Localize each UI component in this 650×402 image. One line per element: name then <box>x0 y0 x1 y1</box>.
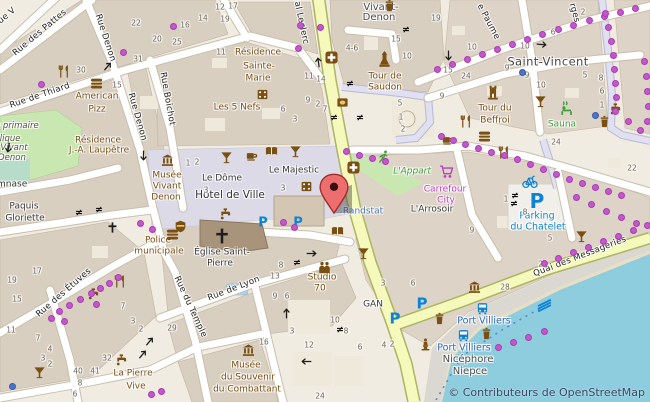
shop-dot <box>612 80 619 87</box>
film-icon <box>256 88 269 101</box>
book-icon <box>331 225 344 238</box>
shop-dot <box>297 22 304 29</box>
house-number-label: 8 <box>599 74 604 82</box>
shop-dot <box>613 94 620 101</box>
poi-label: Le Majestic <box>269 167 319 176</box>
shop-dot <box>618 214 625 221</box>
shop-dot <box>137 220 144 227</box>
shop-dot <box>633 220 640 227</box>
house-number-label: 41 <box>90 367 100 375</box>
poi-label: Marie <box>245 75 270 84</box>
shop-dot <box>149 226 156 233</box>
shop-dot <box>570 22 577 29</box>
poi-label: Tour du <box>478 105 511 114</box>
shop-dot <box>570 249 577 256</box>
oneway-arrow-icon <box>138 150 149 161</box>
shop-dot <box>566 176 573 183</box>
poi-label: Studio <box>308 274 337 283</box>
shop-dot <box>632 5 639 12</box>
cross-icon <box>214 228 230 244</box>
poi-label: Pizz <box>88 106 105 115</box>
shop-dot <box>291 224 298 231</box>
shop-dot <box>514 156 521 163</box>
shop-dot <box>9 383 16 390</box>
shop-dot <box>610 52 617 59</box>
shop-dot <box>527 161 534 168</box>
house-number-label: 1 <box>504 195 509 203</box>
museum-icon <box>242 344 255 357</box>
trash-icon <box>383 0 396 12</box>
shop-dot <box>573 194 580 201</box>
oneway-arrow-icon <box>281 308 292 319</box>
bank-icon <box>336 96 349 109</box>
poi-label: Pierre <box>207 260 233 269</box>
shop-dot <box>170 23 177 30</box>
oneway-arrow-icon <box>306 248 317 259</box>
shop-dot <box>608 38 615 45</box>
shop-dot <box>120 49 127 56</box>
house-number-label: 6 <box>600 87 605 95</box>
poi-label: Vive <box>126 383 145 392</box>
cocktail-icon <box>33 366 46 379</box>
shop-dot <box>602 10 609 17</box>
house-number-label: 3 <box>204 186 209 194</box>
house-number-label: 5 <box>398 99 403 107</box>
house-number-label: 6 <box>73 390 78 398</box>
house-number-label: 4-6 <box>346 44 358 52</box>
poi-label: du Souvenir <box>221 374 275 383</box>
bus-icon <box>457 329 470 342</box>
poi-label: J.-A. Laupêtre <box>69 147 129 156</box>
shop-dot <box>605 24 612 31</box>
poi-label: Denon <box>151 194 180 203</box>
oneway-arrow-icon <box>535 38 547 50</box>
house-number-label: 24 <box>315 392 325 400</box>
house-number-label: 22 <box>131 19 141 27</box>
shop-dot <box>540 166 547 173</box>
map-canvas[interactable]: Rue des Pattesue VRue de ThiardRue Denon… <box>0 0 650 402</box>
poi-label: Port Villiers <box>437 343 490 353</box>
chemist-icon <box>325 51 338 64</box>
shop-dot <box>115 274 122 281</box>
house-number-label: 25 <box>172 38 182 46</box>
parking-icon: P <box>417 297 428 312</box>
shop-dot <box>93 301 100 308</box>
shop-dot <box>510 339 517 346</box>
house-number-label: 15 <box>12 295 22 303</box>
street-label: Rue des Pattes <box>12 8 69 58</box>
shop-dot <box>553 171 560 178</box>
shop-dot <box>501 152 508 159</box>
house-number-label: 8 <box>78 379 83 387</box>
cafe-icon <box>245 149 258 162</box>
trash-icon <box>433 312 446 325</box>
bus-icon <box>476 302 489 315</box>
house-number-label: 1 <box>399 113 404 121</box>
shop-dot <box>295 45 302 52</box>
barrier-icon: ≠ <box>293 258 301 268</box>
shop-dot <box>77 296 84 303</box>
shop-dot <box>603 208 610 215</box>
house-number-label: 8 <box>279 261 284 269</box>
shop-dot <box>644 88 650 95</box>
poi-label: Résidence <box>75 137 121 146</box>
burger-icon <box>478 130 491 143</box>
shop-dot <box>158 388 165 395</box>
oneway-arrow-icon <box>443 50 454 61</box>
shop-dot <box>450 137 457 144</box>
oneway-arrow-icon <box>141 333 156 348</box>
house-number-label: 30 <box>76 66 86 74</box>
barrier-icon: ≠ <box>356 113 364 123</box>
house-number-label: 2 <box>581 8 586 16</box>
barrier-icon: ≠ <box>330 113 338 123</box>
house-number-label: 20 <box>152 35 162 43</box>
house-number-label: 14 <box>316 75 326 83</box>
poi-label: du Chatelet <box>510 222 565 232</box>
restaurant-icon <box>460 115 473 128</box>
street-label: Rue Denon <box>93 13 116 63</box>
poi-label: Denon <box>363 13 396 23</box>
shop-dot <box>106 280 113 287</box>
poi-label: Gloriette <box>5 215 44 224</box>
poi-label: Beffroi <box>480 117 509 126</box>
barrier-icon: ≠ <box>402 25 410 35</box>
shop-dot <box>56 308 63 315</box>
poi-label: Saudon <box>368 84 402 93</box>
shop-dot <box>369 155 376 162</box>
house-number-label: 10 <box>536 81 546 89</box>
street-label: Rue des Étuves <box>35 267 93 319</box>
tower-icon <box>485 84 501 100</box>
shop-dot <box>644 118 650 125</box>
house-number-label: 3 <box>290 327 295 335</box>
shop-dot <box>280 219 287 226</box>
location-pin[interactable] <box>316 170 352 216</box>
trash-icon <box>598 115 611 128</box>
poi-label: Nicéphore <box>443 355 494 365</box>
parking-icon: P <box>390 312 401 327</box>
house-number-label: 3 <box>41 354 46 362</box>
street-label: Rue Boichot <box>158 72 176 127</box>
slipway-icon <box>537 297 552 312</box>
house-number-label: 15 <box>112 81 122 89</box>
house-number-label: 6 <box>358 343 363 351</box>
house-number-label: 4 <box>382 341 387 349</box>
house-number-label: 6 <box>285 292 290 300</box>
poi-label: Gymnase <box>0 181 27 190</box>
house-number-label: 7 <box>36 334 41 342</box>
shop-dot <box>625 118 632 125</box>
shop-dot <box>541 260 548 267</box>
shop-dot <box>317 24 324 31</box>
oneway-arrow-icon <box>312 56 324 68</box>
poi-label: 70 <box>314 285 325 294</box>
book-icon <box>265 145 278 158</box>
cocktail-icon <box>357 247 370 260</box>
shop-dot <box>519 69 526 76</box>
house-number-label: 9 <box>273 292 278 300</box>
cocktail-icon <box>220 151 233 164</box>
house-number-label: 10 <box>467 43 477 51</box>
poi-label: GAN <box>363 301 383 310</box>
street-label: rges <box>567 2 580 23</box>
oneway-arrow-icon <box>2 141 15 154</box>
house-number-label: 22 <box>627 164 637 172</box>
barrier-icon: ≠ <box>346 79 354 89</box>
house-number-label: 7 <box>323 105 328 113</box>
barrier-icon: ≠ <box>95 205 103 215</box>
house-number-label: 17 <box>32 267 42 275</box>
house-number-label: 9 <box>306 96 311 104</box>
shop-dot <box>555 26 562 33</box>
poi-label: L'Appart <box>393 168 431 177</box>
police-icon <box>174 220 187 233</box>
shop-dot <box>509 41 516 48</box>
house-number-label: 12 <box>304 341 314 349</box>
shop-dot <box>615 233 622 240</box>
street-label: Rue Denon <box>126 92 148 142</box>
house-number-label: 2 <box>401 125 406 133</box>
shop-dot <box>61 318 68 325</box>
shop-dot <box>579 180 586 187</box>
shop-dot <box>612 108 619 115</box>
bike-icon <box>522 173 538 189</box>
house-number-label: 10 <box>402 52 412 60</box>
shop-dot <box>539 31 546 38</box>
museum-icon <box>468 281 481 294</box>
shop-dot <box>38 81 45 88</box>
shop-dot <box>617 9 624 16</box>
shop-dot <box>475 145 482 152</box>
shop-dot <box>645 103 650 110</box>
oneway-arrow-icon <box>301 356 312 367</box>
house-number-label: 3 <box>381 279 386 287</box>
sauna-icon <box>559 101 574 116</box>
poi-label: Sainte- <box>243 63 275 72</box>
house-number-label: 6 <box>281 105 286 113</box>
shop-dot <box>592 112 599 119</box>
shop-dot <box>630 227 637 234</box>
cocktail-icon <box>534 95 547 108</box>
cross-icon <box>107 222 118 233</box>
tap-icon <box>219 207 232 220</box>
shop-dot <box>611 66 618 73</box>
house-number-label: 11 <box>6 326 16 334</box>
shop-dot <box>462 141 469 148</box>
cocktail-icon <box>575 230 588 243</box>
shop-dot <box>356 152 363 159</box>
poi-label: Résidence <box>235 49 281 58</box>
poi-label: Musée <box>152 172 181 181</box>
house-number-label: 16 <box>259 338 269 346</box>
house-number-label: 9 <box>505 64 510 72</box>
shop-dot <box>48 315 55 322</box>
oneway-arrow-icon <box>134 346 149 361</box>
shop-dot <box>97 285 104 292</box>
street-label: Rue du Temple <box>172 275 208 339</box>
house-number-label: 32 <box>102 354 112 362</box>
poi-label: Église Saint- <box>194 249 250 258</box>
house-number-label: 9 <box>470 226 475 234</box>
house-number-label: 24 <box>551 138 561 146</box>
house-number-label: 2 <box>195 158 200 166</box>
museum-icon <box>161 154 174 167</box>
shop-dot <box>488 149 495 156</box>
barrier-icon: ≠ <box>75 208 83 218</box>
shop-dot <box>586 17 593 24</box>
poi-label: Musée <box>231 362 260 371</box>
house-number-label: 19 <box>431 14 441 22</box>
house-number-label: 14 <box>198 14 208 22</box>
shop-dot <box>525 334 532 341</box>
house-number-label: 31 <box>133 55 143 63</box>
house-number-label: 2 <box>48 360 53 368</box>
house-number-label: 1 <box>600 101 605 109</box>
poi-label: Port Villiers <box>457 316 510 326</box>
house-number-label: 17 <box>228 2 238 10</box>
poi-label: City <box>437 197 455 206</box>
shop-dot <box>541 328 548 335</box>
poi-label: Vivant <box>153 183 182 192</box>
house-number-label: 13 <box>270 272 280 280</box>
poi-label: Saint-Vincent <box>507 56 588 68</box>
shop-dot <box>588 201 595 208</box>
shop-dot <box>637 127 644 134</box>
shop-dot <box>494 46 501 53</box>
shop-dot <box>66 302 73 309</box>
poi-label: American <box>76 93 119 102</box>
shop-dot <box>343 148 350 155</box>
house-number-label: 24 <box>461 72 471 80</box>
house-number-label: 2 <box>139 325 144 333</box>
poi-label: Niepce <box>453 367 487 377</box>
poi-label: Denon <box>0 154 26 163</box>
street-label: Rue de Lyon <box>207 275 261 303</box>
house-number-label: 5 <box>548 234 553 242</box>
house-number-label: 10 <box>520 42 530 50</box>
house-number-label: 12 <box>215 3 225 11</box>
house-number-label: 19 <box>220 15 230 23</box>
restaurant-icon <box>58 65 71 78</box>
house-number-label: 19 <box>7 276 17 284</box>
house-number-label: 2 <box>390 340 395 348</box>
house-number-label: 29 <box>167 324 177 332</box>
house-number-label: 11 <box>216 48 226 56</box>
house-number-label: 11 <box>304 72 314 80</box>
house-number-label: 1 <box>186 159 191 167</box>
shop-dot <box>148 391 155 398</box>
shop-dot <box>592 184 599 191</box>
house-number-label: 4 <box>48 345 53 353</box>
shop-dot <box>643 73 650 80</box>
house-number-label: 40 <box>73 367 83 375</box>
film-icon <box>300 180 313 193</box>
shop-dot <box>524 36 531 43</box>
shop-dot <box>464 56 471 63</box>
house-number-label: 5 <box>583 71 588 79</box>
poi-label: Sauna <box>548 121 576 130</box>
street-label: e Paume <box>475 3 501 41</box>
shop-dot <box>88 290 95 297</box>
house-number-label: 15 <box>391 35 401 43</box>
shop-dot <box>434 66 441 73</box>
attribution-link[interactable]: © Contributeurs de OpenStreetMap <box>448 386 645 399</box>
shop-dot <box>641 58 648 65</box>
belltower-icon <box>376 51 393 68</box>
poi-label: École primaire <box>0 122 39 131</box>
poi-label: Carrefour <box>424 186 466 195</box>
shop-dot <box>644 222 650 229</box>
poi-label: Le Dôme <box>202 175 242 184</box>
parking-icon: P <box>258 217 268 230</box>
house-number-label: 7 <box>121 302 126 310</box>
poi-label: Paquis <box>9 203 38 212</box>
poi-label: L'Arrosoir <box>411 206 454 215</box>
tap-icon <box>115 353 128 366</box>
shop-dot <box>618 192 625 199</box>
shop-dot <box>382 158 389 165</box>
shop-dot <box>495 344 502 351</box>
shop-dot <box>605 188 612 195</box>
shop-dot <box>479 51 486 58</box>
shop-dot <box>438 133 445 140</box>
barrier-icon: ≠ <box>336 325 344 335</box>
house-number-label: 16 <box>180 21 190 29</box>
poi-label: Les 5 Nefs <box>214 104 261 113</box>
poi-label: La Pierre <box>113 370 152 379</box>
house-number-label: 6 <box>411 279 416 287</box>
trash-icon <box>480 327 493 340</box>
house-number-label: 8 <box>523 208 528 216</box>
house-number-label: 2 <box>316 100 321 108</box>
house-number-label: 10 <box>330 316 340 324</box>
street-label: ue V <box>0 6 18 26</box>
shop-dot <box>585 244 592 251</box>
twoperson-icon <box>318 261 331 274</box>
house-number-label: 3 <box>293 115 298 123</box>
house-number-label: 9 <box>440 92 445 100</box>
cocktail-icon <box>289 145 302 158</box>
house-number-label: 3 <box>131 317 136 325</box>
shop-dot <box>555 255 562 262</box>
burger-icon <box>90 77 103 90</box>
cart-icon <box>439 164 454 179</box>
house-number-label: 28 <box>500 283 510 291</box>
statue-icon <box>419 338 432 351</box>
shop-dot <box>449 61 456 68</box>
parking-icon: P <box>530 191 545 211</box>
shop-dot <box>600 238 607 245</box>
house-number-label: 8 <box>344 327 349 335</box>
house-number-label: 3 <box>281 184 286 192</box>
poi-label: du Combattant <box>213 386 281 395</box>
poi-label: Tour de <box>369 73 402 82</box>
barrier-icon: ≠ <box>510 199 518 209</box>
poi-label: municipale <box>134 248 183 257</box>
